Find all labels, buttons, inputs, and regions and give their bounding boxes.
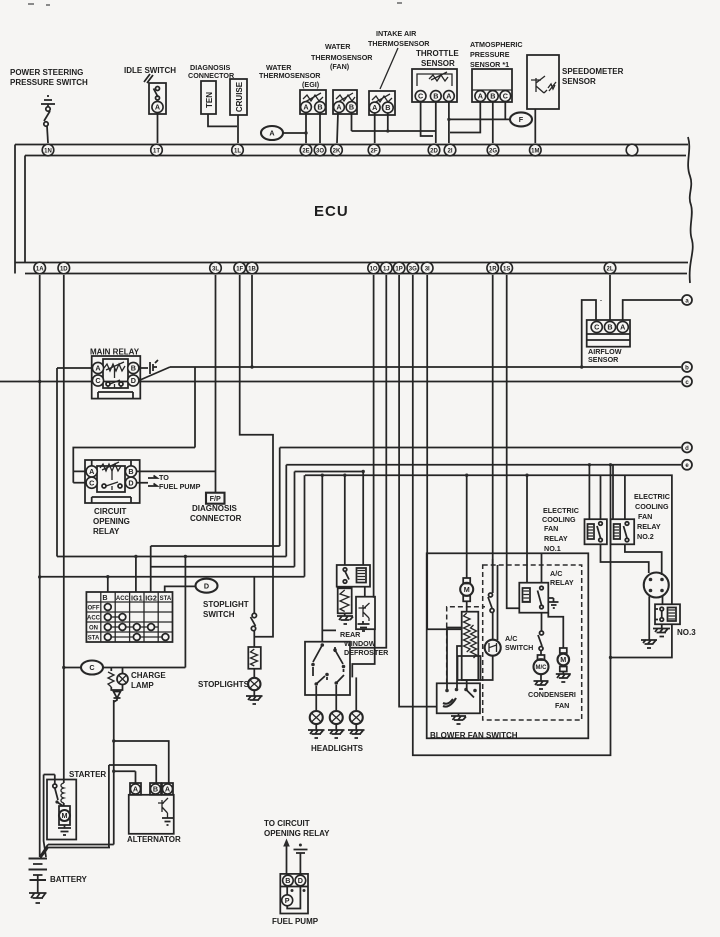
svg-text:d: d [685, 446, 689, 452]
svg-text:M/C: M/C [536, 665, 548, 671]
svg-text:FAN: FAN [544, 524, 558, 533]
svg-text:WATER: WATER [325, 42, 351, 51]
svg-text:ELECTRIC: ELECTRIC [634, 492, 670, 501]
svg-text:2D: 2D [430, 148, 438, 154]
svg-text:B: B [285, 876, 290, 885]
svg-text:A: A [478, 92, 483, 101]
svg-text:STOPLIGHTS: STOPLIGHTS [198, 680, 250, 689]
svg-text:2K: 2K [333, 148, 341, 154]
svg-text:SWITCH: SWITCH [203, 610, 235, 619]
svg-text:1O: 1O [370, 266, 378, 272]
svg-text:STARTER: STARTER [69, 770, 106, 779]
svg-text:M: M [62, 811, 68, 820]
svg-text:TO CIRCUIT: TO CIRCUIT [264, 819, 310, 828]
svg-text:A: A [620, 323, 625, 332]
svg-text:3I: 3I [425, 266, 430, 272]
svg-text:1J: 1J [383, 266, 390, 272]
svg-text:A: A [165, 785, 170, 794]
svg-text:D: D [131, 376, 136, 385]
svg-text:CIRCUIT: CIRCUIT [94, 507, 127, 516]
svg-text:STA: STA [88, 636, 100, 642]
svg-text:3L: 3L [212, 266, 219, 272]
svg-text:THERMOSENSOR: THERMOSENSOR [368, 39, 430, 48]
svg-text:CONNECTOR: CONNECTOR [188, 71, 235, 80]
svg-text:POWER STEERING: POWER STEERING [10, 68, 83, 77]
svg-text:SWITCH: SWITCH [505, 643, 533, 652]
svg-text:NO.2: NO.2 [637, 532, 654, 541]
svg-text:B: B [385, 103, 390, 112]
svg-text:INTAKE AIR: INTAKE AIR [376, 29, 417, 38]
svg-text:SPEEDOMETER: SPEEDOMETER [562, 67, 624, 76]
svg-text:STOPLIGHT: STOPLIGHT [203, 600, 249, 609]
svg-text:A/C: A/C [550, 569, 562, 578]
svg-text:B: B [490, 92, 495, 101]
svg-text:THROTTLE: THROTTLE [416, 49, 459, 58]
svg-text:RELAY: RELAY [550, 578, 574, 587]
svg-text:1S: 1S [503, 266, 510, 272]
svg-text:2E: 2E [302, 148, 309, 154]
svg-text:SENSOR: SENSOR [562, 77, 596, 86]
svg-text:ATMOSPHERIC: ATMOSPHERIC [470, 40, 523, 49]
svg-text:PRESSURE SWITCH: PRESSURE SWITCH [10, 78, 88, 87]
svg-text:A: A [446, 92, 451, 101]
svg-text:A: A [269, 129, 274, 138]
svg-text:RELAY: RELAY [93, 527, 120, 536]
svg-text:A: A [303, 103, 308, 112]
svg-text:1R: 1R [489, 266, 497, 272]
svg-text:A: A [89, 467, 94, 476]
svg-text:IG1: IG1 [131, 594, 143, 603]
svg-text:B: B [317, 103, 322, 112]
svg-text:D: D [298, 876, 303, 885]
svg-text:B: B [131, 364, 136, 373]
svg-text:ALTERNATOR: ALTERNATOR [127, 835, 181, 844]
svg-text:b: b [685, 365, 689, 371]
svg-text:C: C [594, 323, 599, 332]
svg-text:C: C [95, 376, 100, 385]
svg-text:CONDENSERI: CONDENSERI [528, 690, 576, 699]
svg-text:COOLING: COOLING [635, 502, 669, 511]
svg-text:BATTERY: BATTERY [50, 875, 88, 884]
svg-text:NO.1: NO.1 [544, 544, 561, 553]
svg-text:M: M [560, 655, 566, 664]
svg-text:FAN: FAN [555, 701, 569, 710]
svg-text:HEADLIGHTS: HEADLIGHTS [311, 744, 364, 753]
svg-text:A: A [133, 785, 138, 794]
svg-text:ACC: ACC [87, 616, 101, 622]
svg-text:OFF: OFF [88, 606, 100, 612]
svg-text:THERMOSENSOR: THERMOSENSOR [311, 53, 373, 62]
svg-text:SENSOR: SENSOR [588, 355, 619, 364]
svg-text:DIAGNOSIS: DIAGNOSIS [192, 504, 238, 513]
svg-text:A/C: A/C [505, 634, 517, 643]
svg-text:THERMOSENSOR: THERMOSENSOR [259, 71, 321, 80]
svg-text:1L: 1L [234, 148, 241, 154]
svg-text:COOLING: COOLING [542, 515, 576, 524]
svg-text:TEN: TEN [205, 92, 214, 108]
svg-text:RELAY: RELAY [637, 522, 661, 531]
svg-text:FAN: FAN [638, 512, 652, 521]
svg-text:ON: ON [89, 626, 98, 632]
svg-text:2L: 2L [606, 266, 613, 272]
svg-text:CRUISE: CRUISE [235, 81, 244, 112]
svg-text:B: B [607, 323, 612, 332]
svg-text:1A: 1A [36, 266, 44, 272]
svg-text:D: D [204, 581, 209, 590]
svg-text:ELECTRIC: ELECTRIC [543, 506, 579, 515]
svg-text:3O: 3O [316, 148, 324, 154]
svg-text:BLOWER FAN SWITCH: BLOWER FAN SWITCH [430, 731, 518, 740]
svg-text:A: A [95, 364, 100, 373]
svg-text:ECU: ECU [314, 203, 349, 220]
svg-text:1P: 1P [395, 266, 402, 272]
svg-text:FUEL PUMP: FUEL PUMP [159, 482, 201, 491]
svg-text:A: A [372, 103, 377, 112]
svg-text:C: C [503, 92, 508, 101]
svg-text:F: F [519, 115, 524, 124]
svg-text:1M: 1M [531, 148, 539, 154]
svg-text:CONNECTOR: CONNECTOR [190, 514, 242, 523]
svg-text:1D: 1D [60, 266, 68, 272]
svg-text:2F: 2F [370, 148, 377, 154]
svg-text:1B: 1B [248, 266, 256, 272]
svg-text:2I: 2I [447, 148, 452, 154]
svg-text:3G: 3G [409, 266, 417, 272]
svg-text:F/P: F/P [210, 494, 221, 503]
svg-text:C: C [89, 663, 94, 672]
svg-text:D: D [128, 478, 133, 487]
svg-text:SENSOR: SENSOR [421, 59, 455, 68]
svg-text:OPENING: OPENING [93, 517, 130, 526]
svg-text:SENSOR *1: SENSOR *1 [470, 60, 509, 69]
svg-text:(FAN): (FAN) [330, 62, 350, 71]
svg-text:NO.3: NO.3 [677, 628, 696, 637]
svg-text:P: P [285, 896, 290, 905]
svg-text:A: A [155, 103, 160, 112]
svg-text:B: B [433, 92, 438, 101]
svg-text:IDLE SWITCH: IDLE SWITCH [124, 66, 176, 75]
svg-text:IG2: IG2 [145, 594, 157, 603]
svg-text:WINDOW: WINDOW [344, 639, 376, 648]
svg-text:OPENING RELAY: OPENING RELAY [264, 829, 330, 838]
svg-text:B: B [102, 593, 107, 602]
svg-text:ACC: ACC [116, 596, 130, 602]
svg-text:B: B [128, 467, 133, 476]
svg-text:1F: 1F [236, 266, 243, 272]
svg-text:B: B [349, 103, 354, 112]
svg-text:C: C [418, 92, 423, 101]
svg-text:2G: 2G [489, 148, 497, 154]
svg-text:C: C [89, 478, 94, 487]
svg-text:FUEL PUMP: FUEL PUMP [272, 917, 319, 926]
svg-text:TO: TO [159, 473, 169, 482]
svg-text:M: M [464, 585, 470, 594]
svg-text:REAR: REAR [340, 630, 361, 639]
svg-text:PRESSURE: PRESSURE [470, 50, 510, 59]
svg-text:RELAY: RELAY [544, 534, 568, 543]
svg-text:1T: 1T [153, 148, 160, 154]
svg-text:A: A [336, 103, 341, 112]
svg-text:(EGI): (EGI) [302, 80, 320, 89]
svg-text:1N: 1N [44, 148, 52, 154]
svg-text:CHARGE: CHARGE [131, 671, 166, 680]
svg-text:LAMP: LAMP [131, 681, 154, 690]
svg-text:STA: STA [160, 596, 172, 602]
svg-text:B: B [153, 785, 158, 794]
